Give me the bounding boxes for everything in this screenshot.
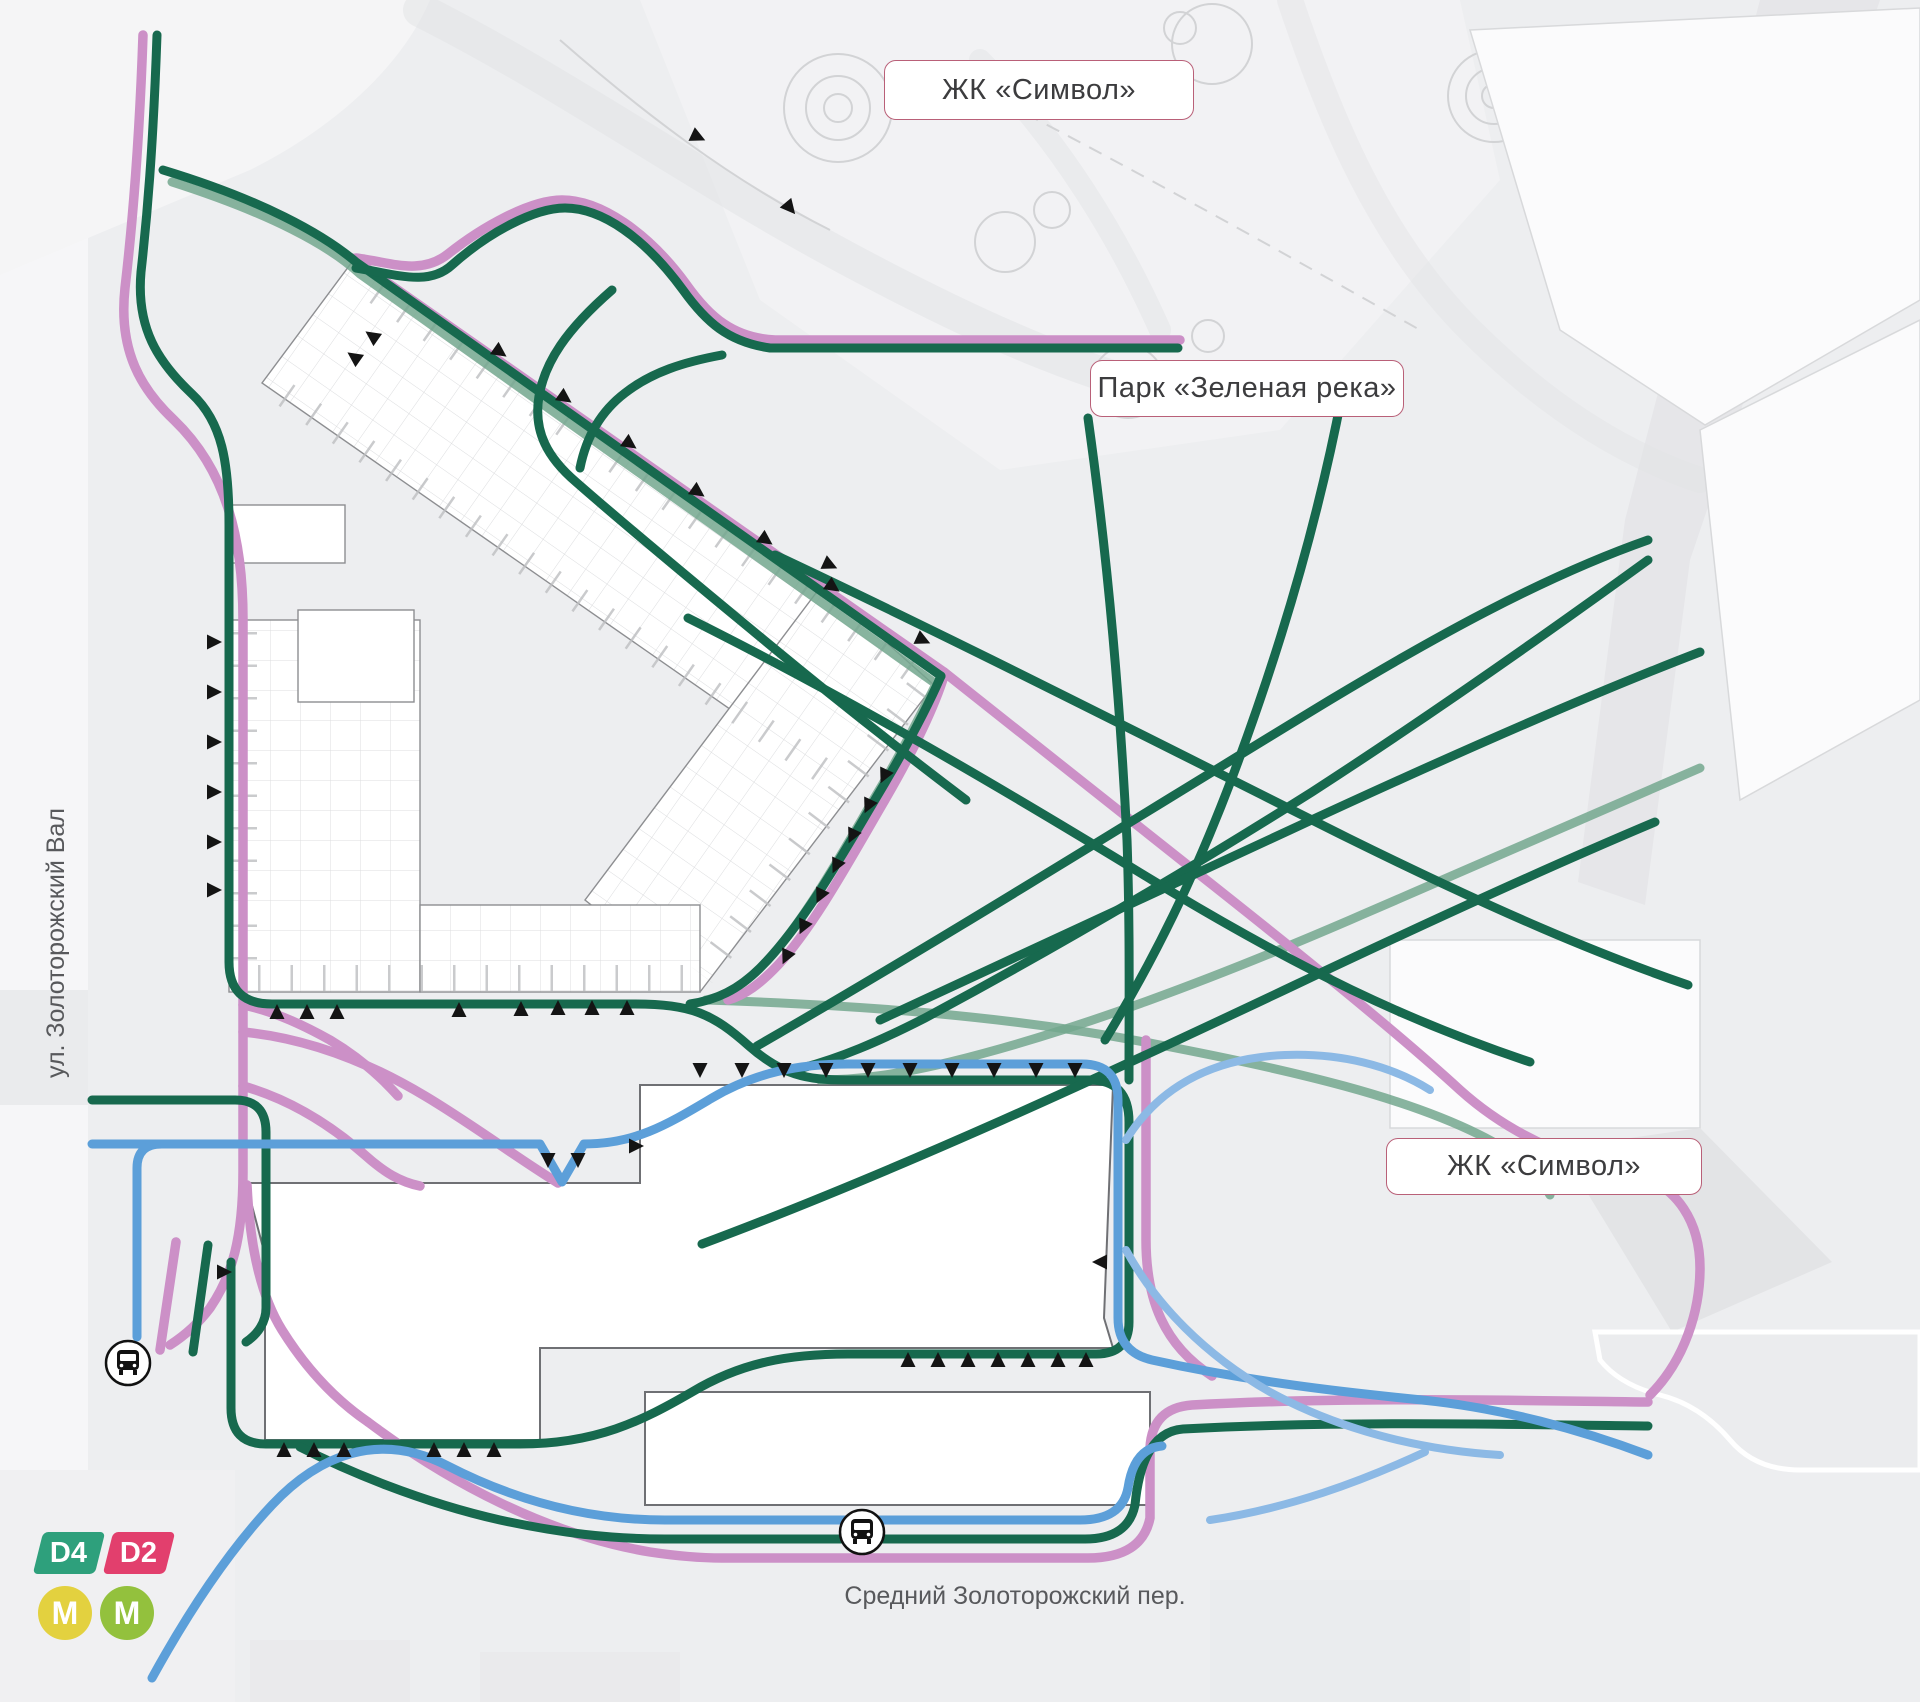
street-label-left: ул. Золоторожский Вал bbox=[42, 808, 71, 1078]
map-canvas bbox=[0, 0, 1920, 1702]
bus-stop-icon bbox=[840, 1510, 884, 1554]
label-complex-top: ЖК «Символ» bbox=[884, 60, 1194, 120]
label-complex-right: ЖК «Символ» bbox=[1386, 1138, 1702, 1195]
label-park: Парк «Зеленая река» bbox=[1090, 360, 1404, 417]
legend: D4 D2 М М bbox=[38, 1532, 198, 1652]
label-complex-right-text: ЖК «Символ» bbox=[1447, 1150, 1641, 1183]
legend-d2-badge: D2 bbox=[103, 1532, 175, 1574]
legend-metro1-label: М bbox=[52, 1595, 79, 1632]
legend-metro-icon: М bbox=[100, 1586, 154, 1640]
legend-d4-badge: D4 bbox=[33, 1532, 105, 1574]
legend-metro2-label: М bbox=[114, 1595, 141, 1632]
legend-metro-icon: М bbox=[38, 1586, 92, 1640]
legend-d2-label: D2 bbox=[120, 1537, 157, 1570]
bus-stop-icon bbox=[106, 1341, 150, 1385]
label-park-text: Парк «Зеленая река» bbox=[1098, 372, 1397, 405]
label-complex-top-text: ЖК «Символ» bbox=[942, 74, 1136, 107]
legend-d4-label: D4 bbox=[50, 1537, 87, 1570]
street-label-bottom: Средний Золоторожский пер. bbox=[820, 1582, 1210, 1611]
site-plan-map: ЖК «Символ» Парк «Зеленая река» ЖК «Симв… bbox=[0, 0, 1920, 1702]
